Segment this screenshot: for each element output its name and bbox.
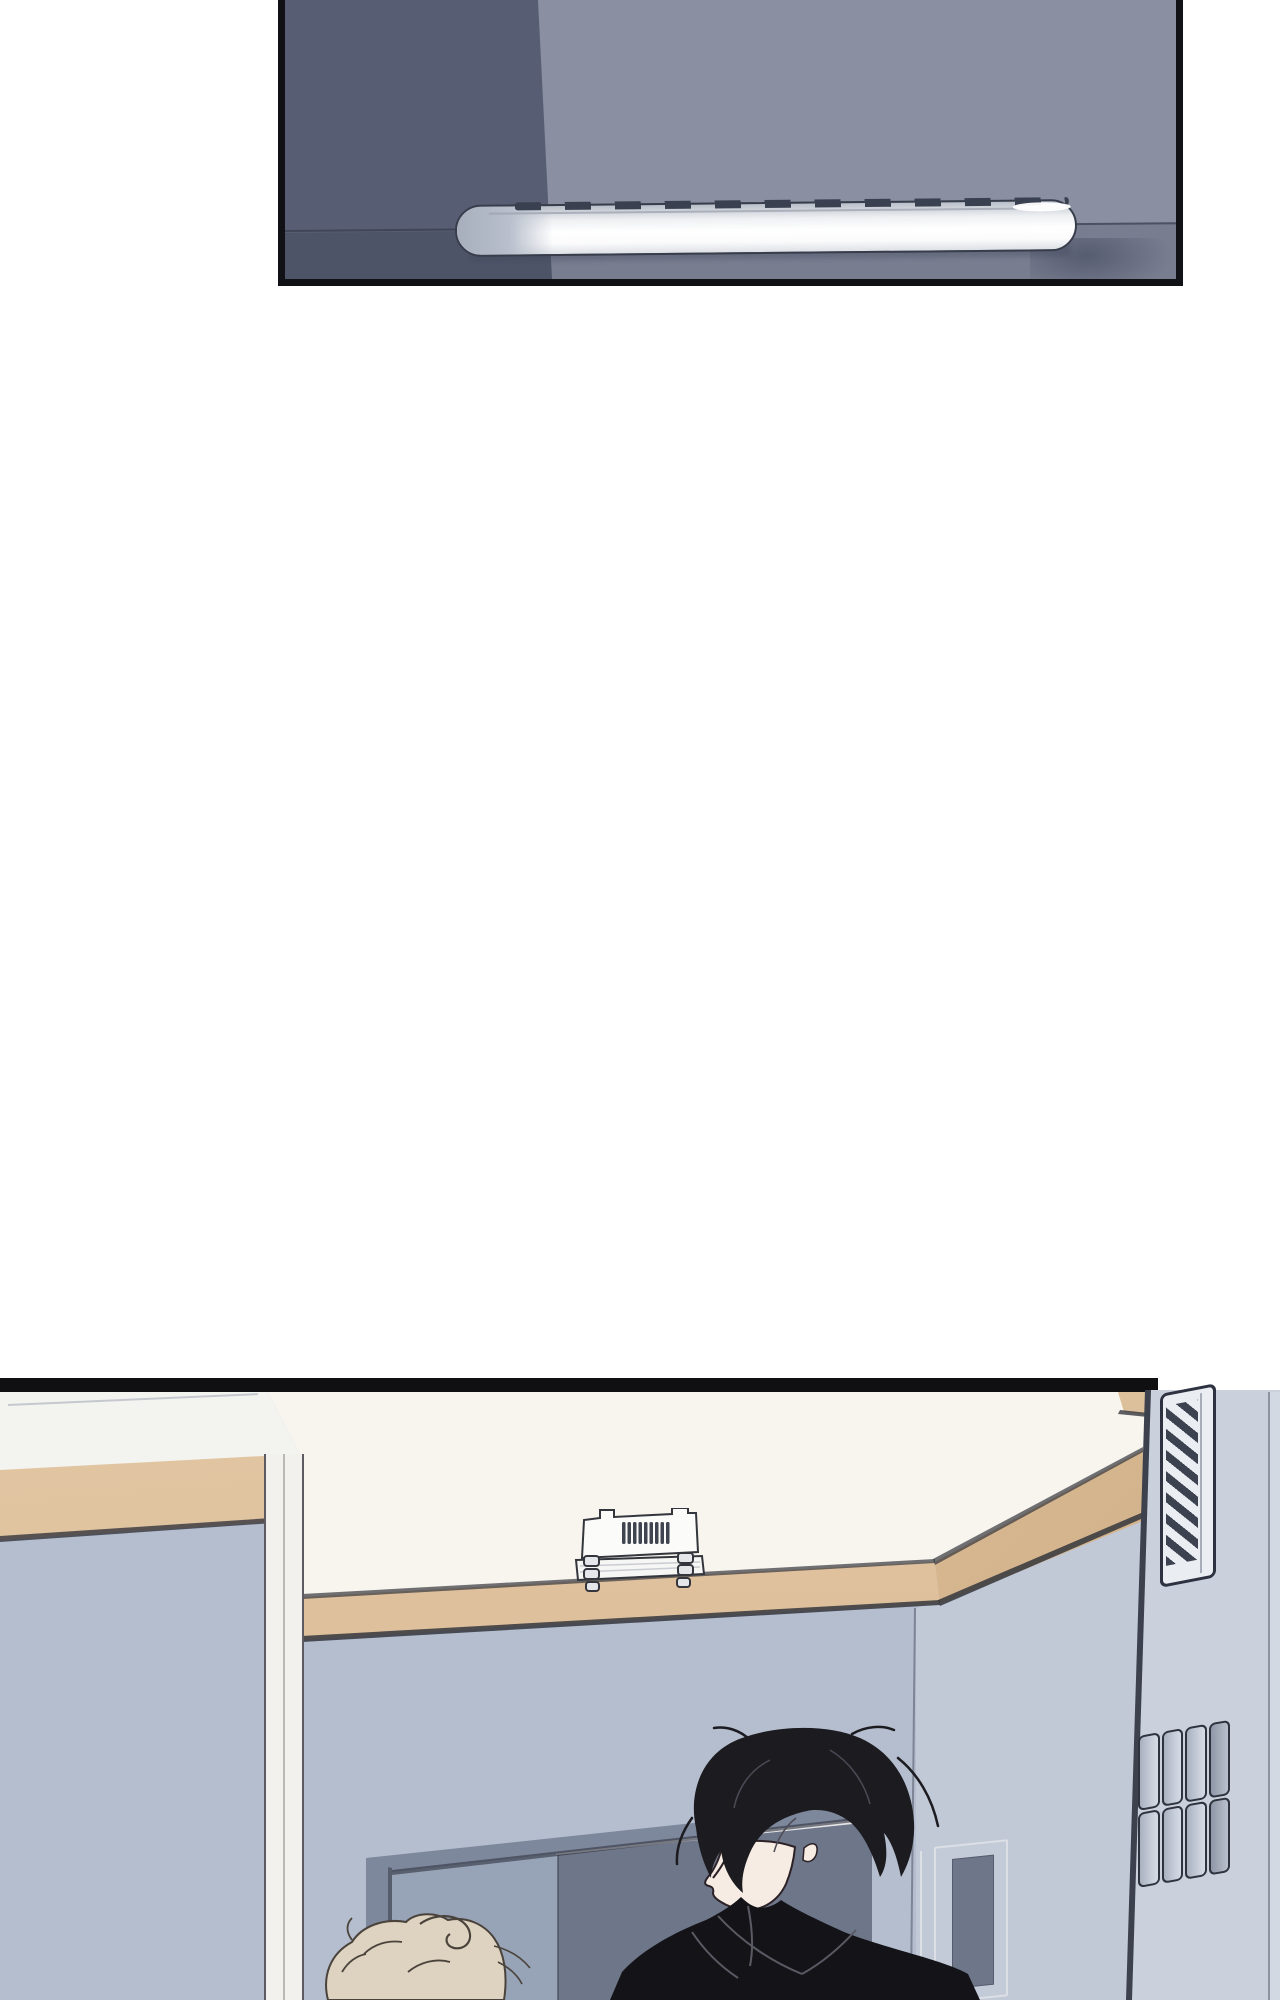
block-cell bbox=[1162, 1728, 1184, 1807]
unit-grille bbox=[622, 1522, 670, 1544]
vent-slats bbox=[1166, 1400, 1198, 1566]
column-middle-line bbox=[283, 1454, 285, 2000]
right-wall-corner-line bbox=[1268, 1392, 1270, 2000]
hair bbox=[694, 1728, 914, 1893]
block-cell bbox=[1209, 1797, 1231, 1876]
ceiling-unit bbox=[570, 1508, 720, 1600]
coat-body bbox=[610, 1897, 980, 2000]
block-cell bbox=[1185, 1724, 1207, 1803]
right-wall-side-face bbox=[1270, 1392, 1280, 2000]
blond-hair bbox=[326, 1914, 505, 2000]
vent-side-face-line bbox=[1200, 1393, 1202, 1573]
ear bbox=[803, 1844, 817, 1862]
air-vent bbox=[1160, 1383, 1216, 1588]
dark-haired-man bbox=[600, 1700, 1020, 2000]
comic-page bbox=[0, 0, 1280, 2000]
fluorescent-light-bar bbox=[455, 199, 1077, 257]
block-cell bbox=[1138, 1732, 1160, 1811]
blond-person bbox=[312, 1912, 542, 2000]
door-edge-line bbox=[557, 1855, 559, 2000]
white-door-column bbox=[264, 1454, 304, 2000]
block-cell bbox=[1185, 1801, 1207, 1880]
bottom-panel bbox=[0, 1378, 1280, 2000]
block-cell bbox=[1162, 1805, 1184, 1884]
panel-top-border-bar bbox=[0, 1378, 1158, 1392]
block-cell bbox=[1138, 1809, 1160, 1888]
block-cell bbox=[1209, 1720, 1231, 1799]
top-panel bbox=[278, 0, 1183, 286]
block-shelf-decor bbox=[1138, 1720, 1230, 1888]
